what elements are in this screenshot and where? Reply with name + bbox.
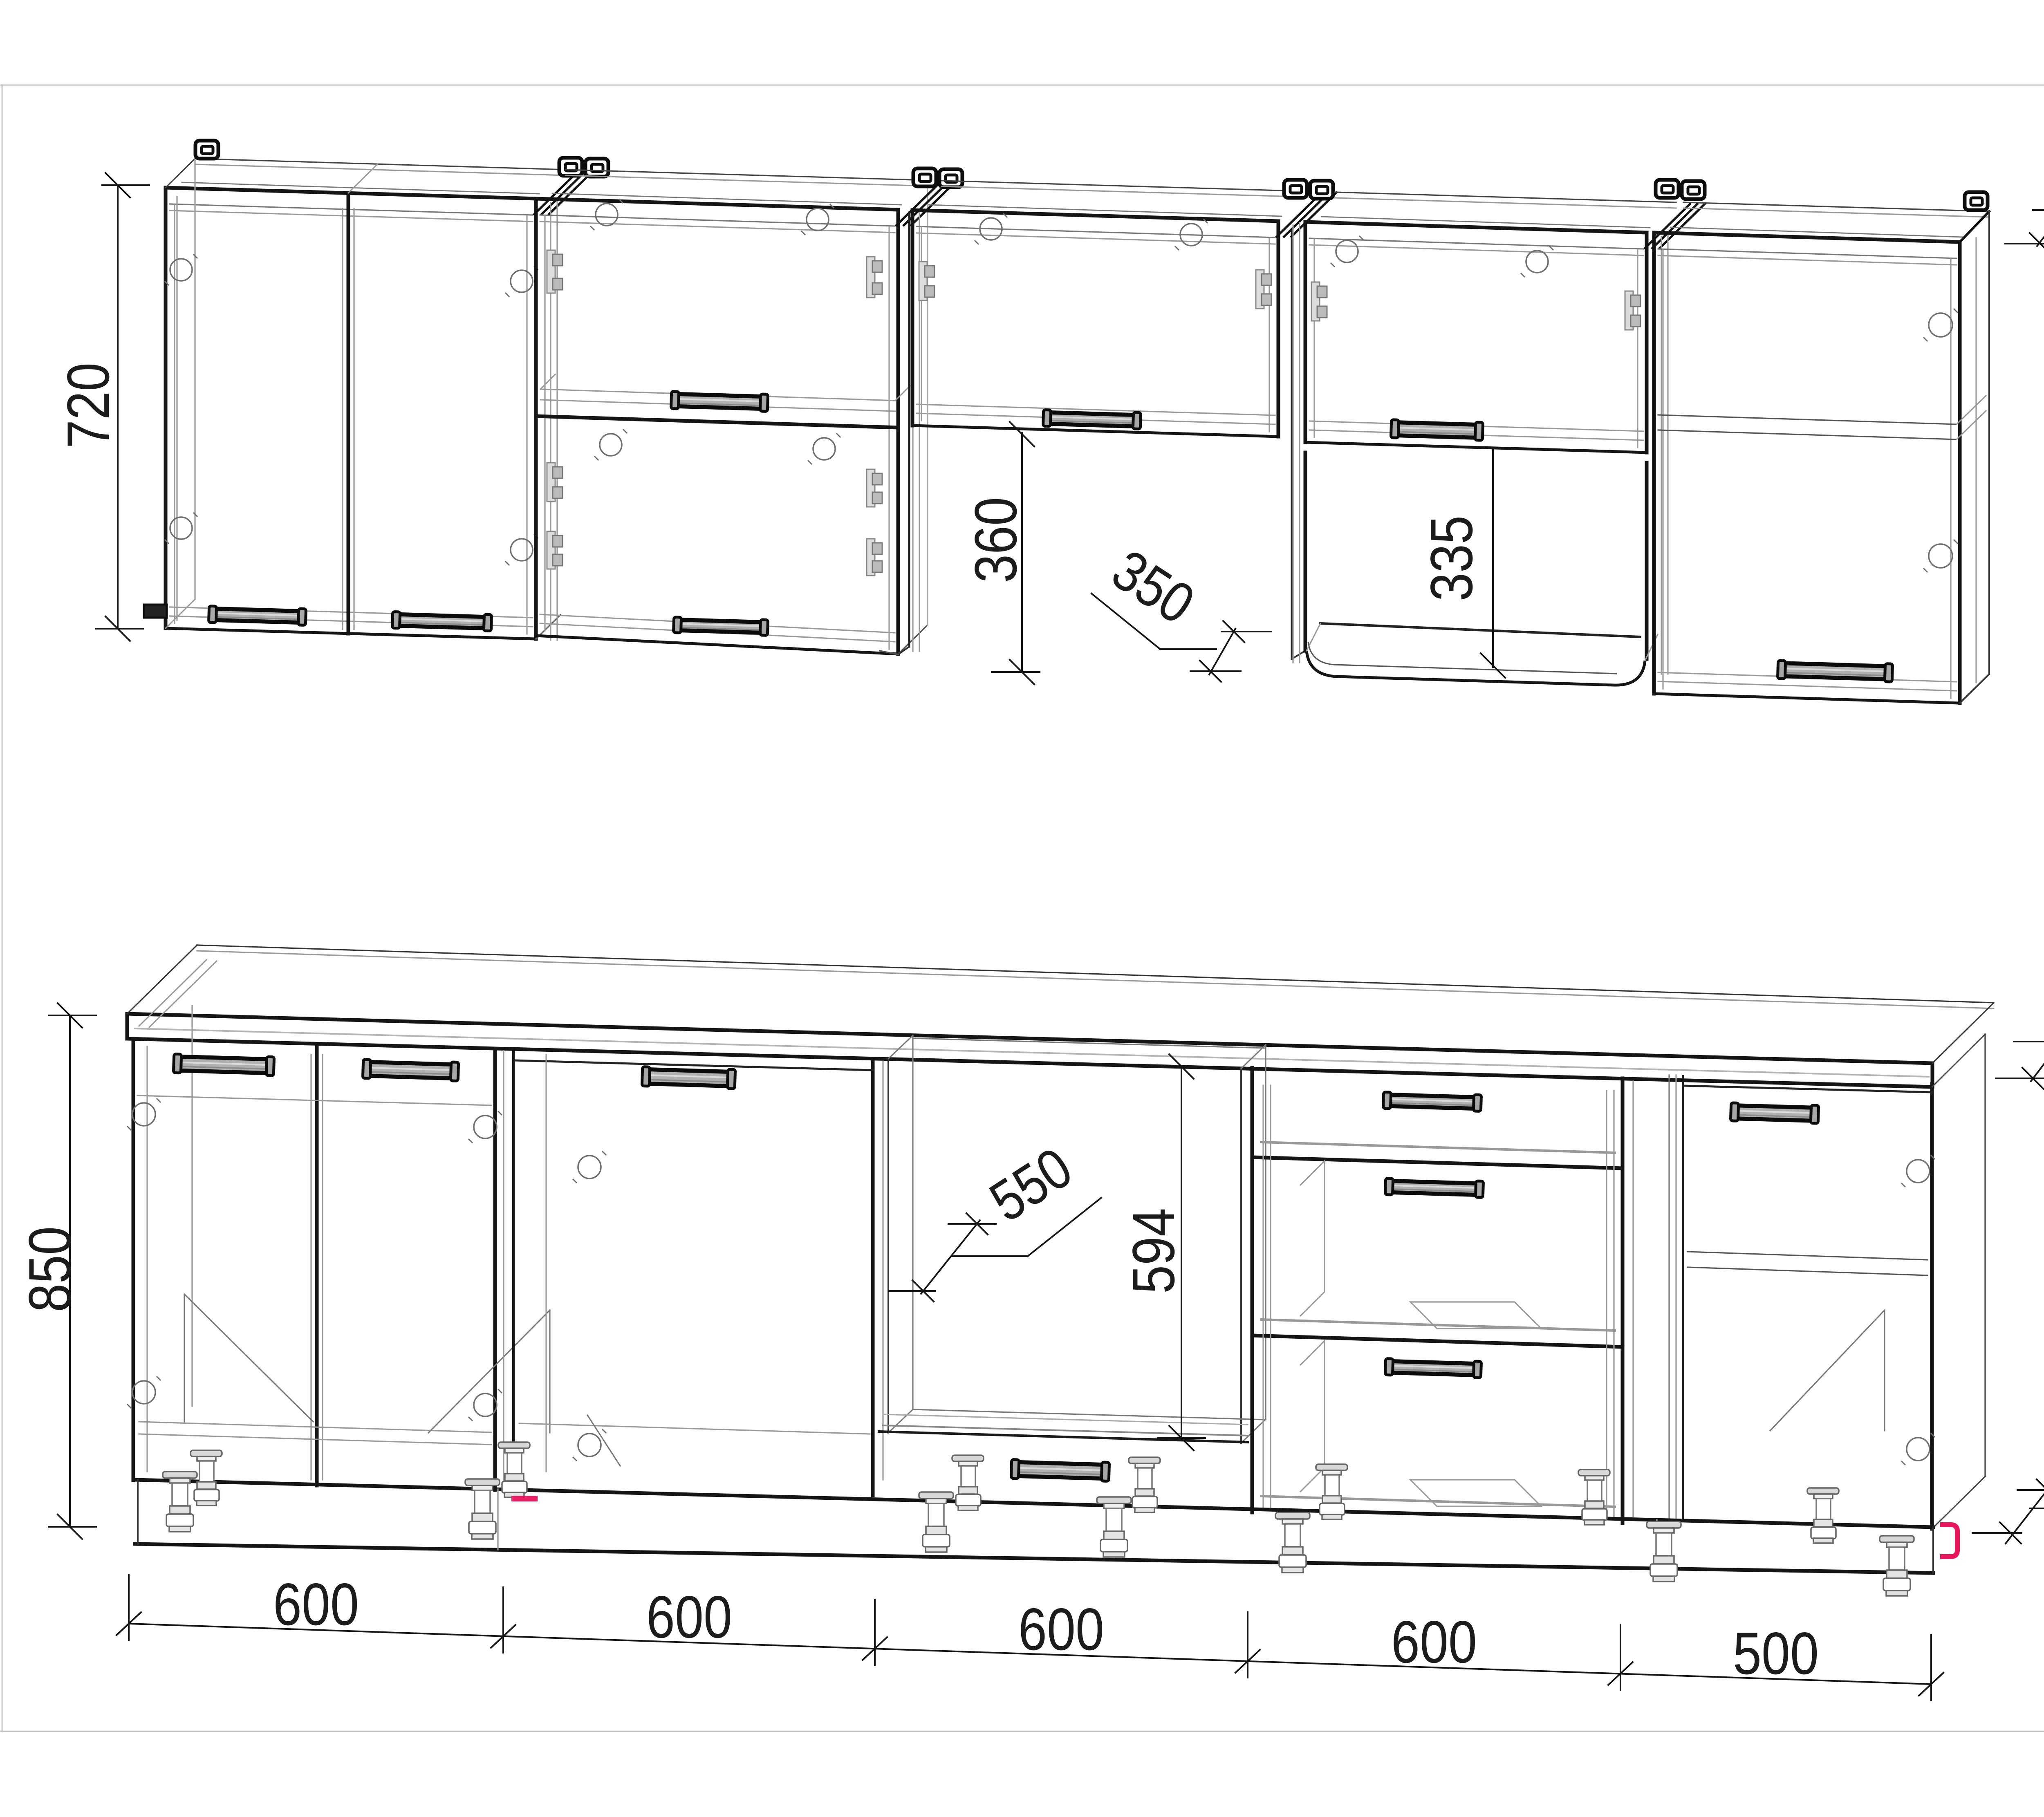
svg-text:600: 600 [1018, 1596, 1104, 1662]
svg-text:500: 500 [1733, 1620, 1819, 1687]
svg-text:600: 600 [646, 1584, 732, 1650]
svg-text:594: 594 [1120, 1208, 1187, 1294]
svg-text:850: 850 [16, 1226, 83, 1312]
svg-text:335: 335 [1418, 515, 1485, 601]
svg-text:600: 600 [1391, 1609, 1477, 1675]
svg-text:360: 360 [962, 497, 1029, 583]
svg-text:720: 720 [55, 363, 121, 448]
svg-text:600: 600 [273, 1571, 359, 1638]
